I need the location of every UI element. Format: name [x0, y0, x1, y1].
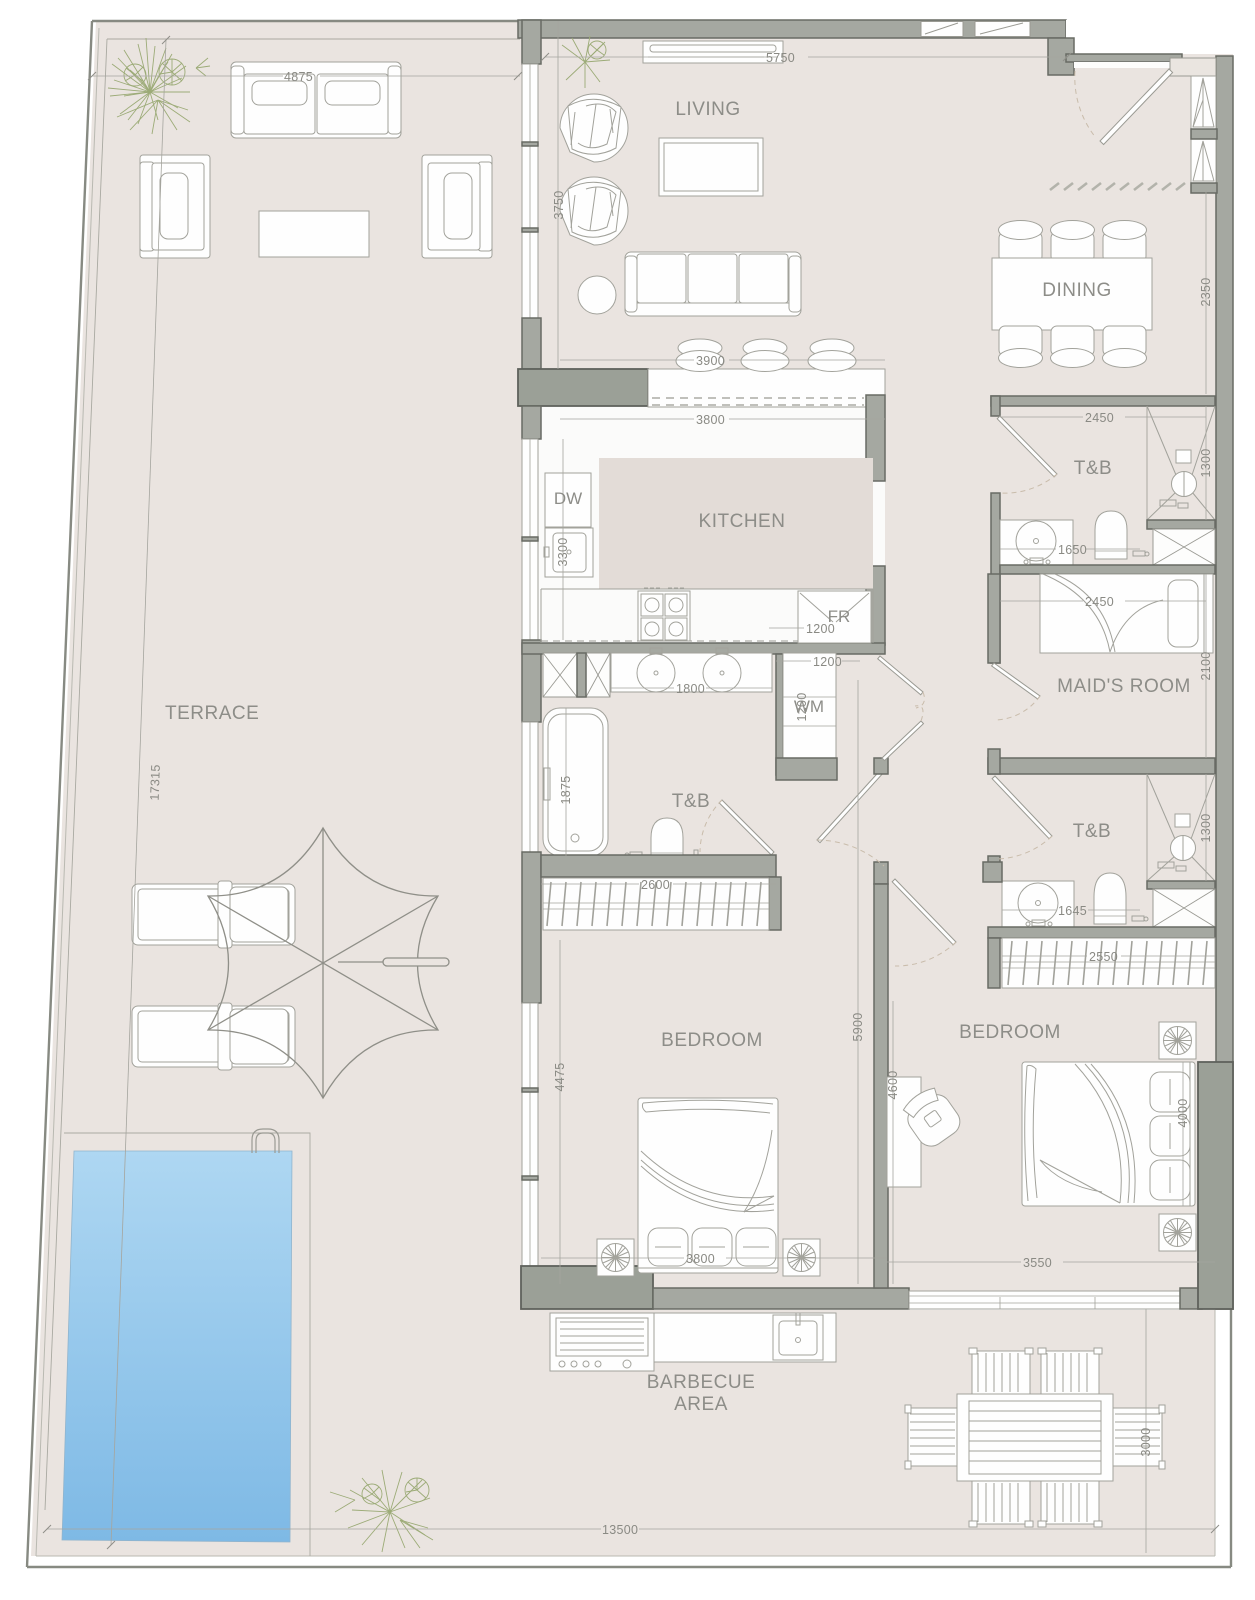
svg-text:3000: 3000 — [1139, 1427, 1153, 1456]
svg-text:2550: 2550 — [1089, 950, 1118, 964]
svg-text:AREA: AREA — [674, 1394, 728, 1415]
svg-text:3900: 3900 — [696, 354, 725, 368]
svg-text:1875: 1875 — [559, 775, 573, 804]
svg-text:2600: 2600 — [641, 878, 670, 892]
svg-text:BEDROOM: BEDROOM — [959, 1022, 1061, 1043]
svg-text:5750: 5750 — [766, 51, 795, 65]
svg-text:1645: 1645 — [1058, 904, 1087, 918]
svg-text:FR: FR — [828, 607, 851, 626]
svg-text:2100: 2100 — [1199, 651, 1213, 680]
svg-text:4875: 4875 — [284, 70, 313, 84]
svg-text:4600: 4600 — [886, 1070, 900, 1099]
svg-text:2450: 2450 — [1085, 595, 1114, 609]
svg-text:T&B: T&B — [1074, 458, 1112, 479]
svg-text:KITCHEN: KITCHEN — [699, 511, 786, 532]
svg-text:1300: 1300 — [1199, 448, 1213, 477]
svg-text:3800: 3800 — [696, 413, 725, 427]
svg-text:LIVING: LIVING — [675, 99, 740, 120]
svg-text:4475: 4475 — [553, 1062, 567, 1091]
svg-text:DINING: DINING — [1042, 280, 1112, 301]
svg-text:3800: 3800 — [686, 1252, 715, 1266]
svg-text:MAID'S ROOM: MAID'S ROOM — [1057, 676, 1191, 697]
svg-text:1200: 1200 — [813, 655, 842, 669]
svg-text:2450: 2450 — [1085, 411, 1114, 425]
svg-text:T&B: T&B — [1073, 821, 1111, 842]
svg-text:BEDROOM: BEDROOM — [661, 1030, 763, 1051]
svg-text:2350: 2350 — [1199, 277, 1213, 306]
svg-text:4000: 4000 — [1176, 1098, 1190, 1127]
svg-text:DW: DW — [554, 489, 582, 508]
svg-text:T&B: T&B — [672, 791, 710, 812]
svg-text:1650: 1650 — [1058, 543, 1087, 557]
svg-text:1800: 1800 — [676, 682, 705, 696]
svg-text:5900: 5900 — [851, 1012, 865, 1041]
svg-text:TERRACE: TERRACE — [165, 703, 259, 724]
svg-text:3300: 3300 — [556, 537, 570, 566]
svg-text:BARBECUE: BARBECUE — [647, 1372, 756, 1393]
svg-text:17315: 17315 — [148, 764, 163, 801]
svg-text:1300: 1300 — [1199, 813, 1213, 842]
svg-text:3550: 3550 — [1023, 1256, 1052, 1270]
svg-text:13500: 13500 — [602, 1523, 638, 1537]
svg-text:3750: 3750 — [552, 190, 566, 219]
svg-text:WM: WM — [794, 697, 824, 716]
